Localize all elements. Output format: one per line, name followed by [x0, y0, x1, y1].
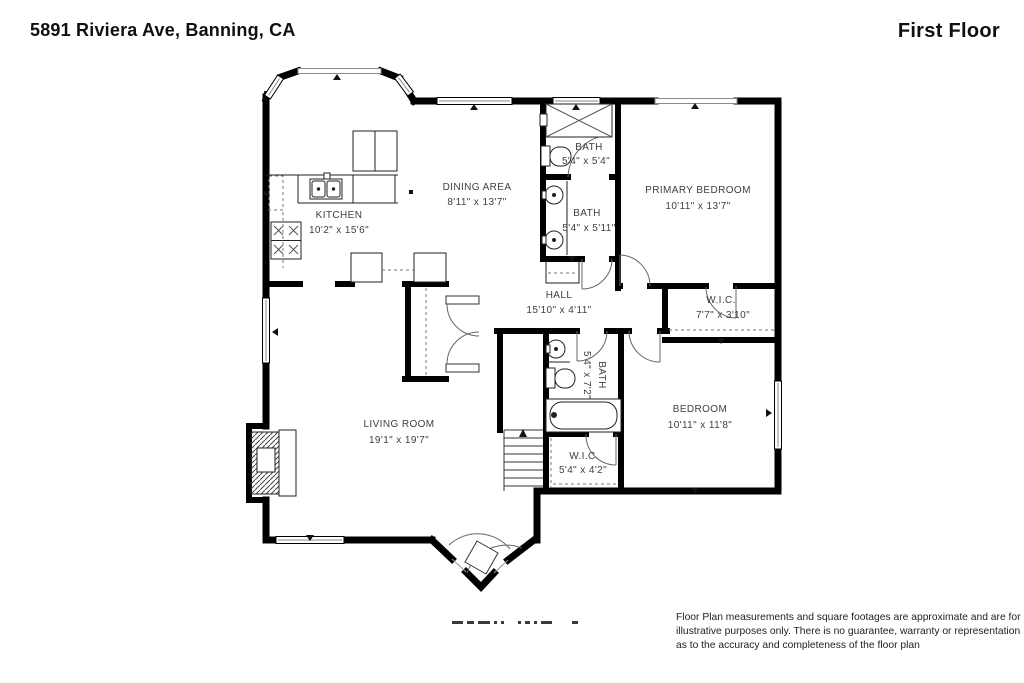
window-bedroom-right — [775, 381, 782, 449]
stove — [353, 175, 395, 203]
room-dims: 5'4" x 5'4" — [562, 156, 610, 167]
room-dims: 5'4" x 5'11" — [562, 223, 615, 234]
room-dims: 7'7" x 3'10" — [696, 310, 750, 321]
stairs — [504, 429, 543, 491]
window-dining-top — [437, 98, 512, 105]
fireplace — [251, 430, 296, 496]
room-dims: 5'4" x 4'2" — [559, 465, 607, 476]
kitchen-peninsula — [351, 253, 446, 282]
bath-fixtures — [540, 104, 621, 432]
toilet — [546, 368, 575, 388]
room-name: BATH — [575, 142, 603, 153]
room-label-hall: HALL 15'10" x 4'11" — [526, 290, 591, 316]
interior-walls — [249, 101, 778, 500]
door-primary-bedroom — [620, 255, 650, 286]
room-name: BATH — [573, 208, 601, 219]
door-bath-middle — [582, 259, 612, 289]
room-dims: 10'11" x 11'8" — [668, 420, 733, 431]
window-primary-top — [655, 99, 737, 104]
room-label-dining-area: DINING AREA 8'11" x 13'7" — [443, 182, 512, 208]
room-label-primary-bedroom: PRIMARY BEDROOM 10'11" x 13'7" — [645, 185, 751, 212]
floor-plan-drawing: KITCHEN 10'2" x 15'6" DINING AREA 8'11" … — [0, 0, 1024, 683]
room-label-bedroom: BEDROOM 10'11" x 11'8" — [668, 404, 733, 431]
door-closet — [446, 296, 479, 372]
door-bedroom — [629, 331, 660, 362]
room-label-wic-primary: W.I.C. 7'7" x 3'10" — [696, 295, 750, 321]
room-label-wic-hall: W.I.C. 5'4" x 4'2" — [559, 451, 607, 476]
window-bay-right — [395, 74, 414, 96]
room-name: BATH — [596, 361, 607, 389]
sink-round — [546, 340, 570, 362]
windows — [263, 69, 782, 544]
range-burners — [271, 222, 301, 259]
bathtub — [546, 399, 621, 432]
window-bay-top — [298, 69, 381, 74]
room-name: LIVING ROOM — [363, 419, 434, 430]
room-dims: 15'10" x 4'11" — [526, 305, 591, 316]
clipped-text-fragment — [452, 621, 578, 625]
room-label-kitchen: KITCHEN 10'2" x 15'6" — [309, 210, 369, 236]
window-bay-left — [265, 75, 284, 99]
window-living-left — [263, 298, 270, 363]
room-dims: 10'2" x 15'6" — [309, 225, 369, 236]
refrigerator — [353, 131, 397, 171]
room-dims: 19'1" x 19'7" — [369, 435, 429, 446]
room-name: PRIMARY BEDROOM — [645, 185, 751, 196]
room-dims: 8'11" x 13'7" — [447, 197, 506, 208]
disclaimer-text: Floor Plan measurements and square foota… — [676, 611, 1021, 653]
floor-plan-page: 5891 Riviera Ave, Banning, CA First Floo… — [0, 0, 1024, 683]
room-name: BEDROOM — [673, 404, 727, 415]
room-name: DINING AREA — [443, 182, 512, 193]
kitchen-sink — [310, 173, 342, 199]
room-name: W.I.C. — [569, 451, 599, 462]
room-name: KITCHEN — [316, 210, 363, 221]
kitchen-fixtures — [266, 131, 446, 282]
room-name: HALL — [546, 290, 573, 301]
linen-closet — [546, 262, 579, 283]
room-label-bath-hall: BATH 5'4" x 7'2" — [581, 351, 607, 399]
dimension-ticks — [264, 74, 772, 541]
room-dims: 5'4" x 7'2" — [581, 351, 592, 399]
window-bath-top — [553, 98, 600, 105]
room-label-bath-middle: BATH 5'4" x 5'11" — [562, 208, 615, 234]
room-name: W.I.C. — [706, 295, 736, 306]
room-dims: 10'11" x 13'7" — [665, 201, 730, 212]
room-label-living-room: LIVING ROOM 19'1" x 19'7" — [363, 419, 434, 446]
